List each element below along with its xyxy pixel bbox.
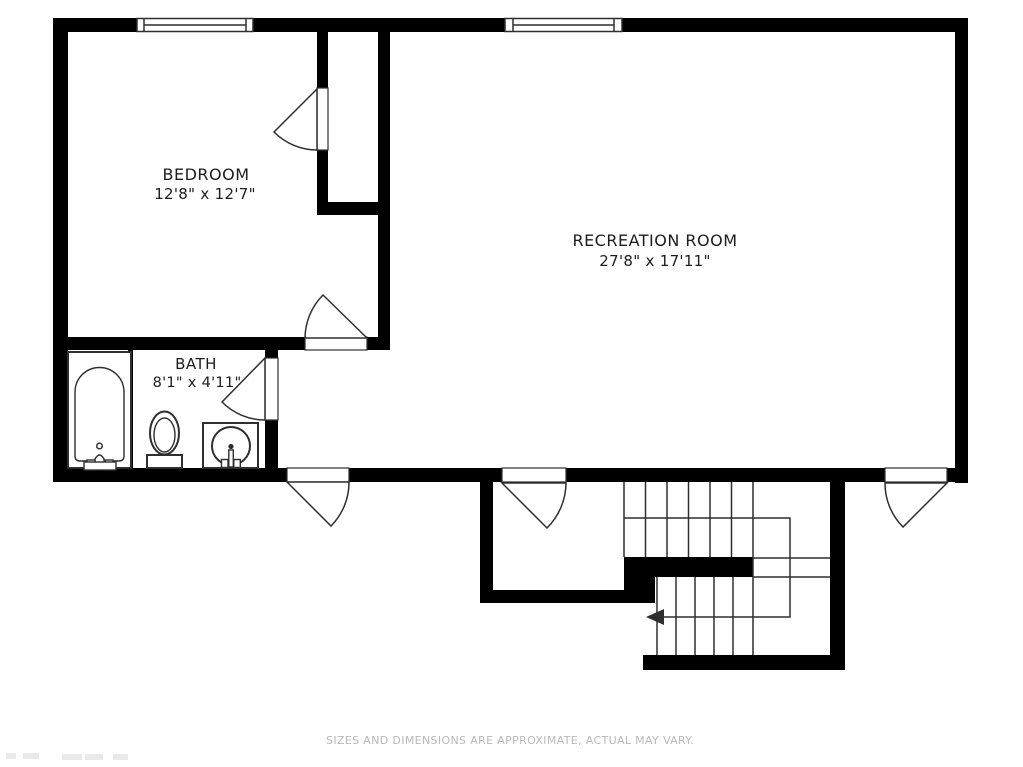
- bathtub-drain: [97, 443, 103, 449]
- bath-right-wall-lower: [265, 420, 278, 468]
- bedroom-dimensions: 12'8" x 12'7": [154, 185, 256, 203]
- stairwell-right-wall: [830, 470, 845, 670]
- bedroom-door-symbol: [305, 295, 367, 350]
- toilet-bowl-inner: [154, 418, 175, 452]
- recreation-room-label: RECREATION ROOM: [572, 231, 737, 250]
- door-swing-arc: [287, 482, 349, 526]
- interior-walls: [53, 18, 845, 670]
- door-opening: [317, 88, 328, 150]
- door-swing-arc: [305, 295, 367, 338]
- door-opening: [885, 468, 947, 482]
- bath-label: BATH: [175, 355, 217, 373]
- bath-right-wall-stub: [265, 345, 278, 358]
- bathtub-faucet-bar: [84, 462, 116, 470]
- exterior-door-left-symbol: [287, 468, 349, 526]
- stair-separator-wall: [624, 557, 753, 577]
- door-swing-arc: [274, 89, 317, 150]
- watermark-remnant: [6, 753, 128, 760]
- exterior-door-right-symbol: [885, 468, 947, 527]
- toilet-icon: [147, 412, 182, 469]
- bedroom-bottom-wall-2: [367, 337, 390, 350]
- door-swing-arc: [885, 483, 947, 527]
- door-opening: [265, 358, 278, 420]
- door-swing-arc: [502, 483, 566, 528]
- toilet-tank: [147, 455, 182, 468]
- stair-hall-bottom-wall: [480, 590, 655, 603]
- stairwell-bottom-wall: [643, 655, 845, 670]
- wall-top-3: [622, 18, 968, 32]
- recreation-room-window-symbol: [505, 19, 622, 32]
- door-opening: [502, 468, 566, 482]
- floor-plan-svg: BEDROOM 12'8" x 12'7" RECREATION ROOM 27…: [0, 0, 1023, 767]
- stair-separator-leg: [624, 577, 655, 590]
- sink-handle: [222, 460, 229, 468]
- bedroom-rec-divider-wall: [378, 18, 390, 350]
- sink-faucet-stem: [229, 450, 234, 467]
- bathtub-icon: [68, 352, 131, 470]
- bedroom-label: BEDROOM: [162, 165, 249, 184]
- wall-bottom-2: [349, 468, 502, 482]
- stair-hall-door-symbol: [502, 468, 566, 528]
- wall-left: [53, 18, 68, 482]
- disclaimer-text: SIZES AND DIMENSIONS ARE APPROXIMATE, AC…: [326, 734, 694, 747]
- wall-right: [955, 18, 968, 483]
- bath-dimensions: 8'1" x 4'11": [153, 375, 242, 391]
- closet-door-symbol: [274, 88, 328, 150]
- stair-hall-left-wall: [480, 482, 493, 603]
- sink-icon: [203, 423, 258, 468]
- sink-drain: [228, 444, 233, 449]
- door-opening: [305, 337, 367, 350]
- recreation-room-dimensions: 27'8" x 17'11": [599, 252, 710, 270]
- exterior-walls: [53, 18, 968, 483]
- closet-wall-upper: [317, 32, 328, 88]
- floor-plan-canvas: BEDROOM 12'8" x 12'7" RECREATION ROOM 27…: [0, 0, 1023, 767]
- stair-direction-arrow-icon: [646, 609, 664, 625]
- sink-handle: [234, 460, 241, 468]
- bedroom-window-symbol: [137, 19, 253, 32]
- wall-bottom-4: [947, 468, 968, 482]
- door-opening: [287, 468, 349, 482]
